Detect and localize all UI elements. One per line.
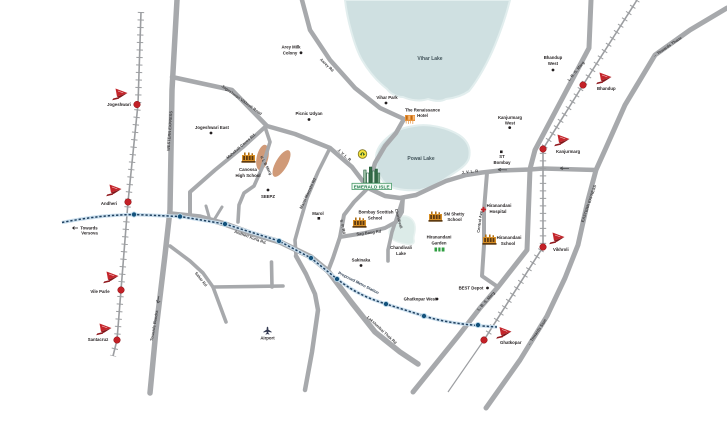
svg-text:Santacruz: Santacruz xyxy=(88,337,109,342)
svg-text:Airport: Airport xyxy=(260,336,275,341)
svg-text:Ghatkopar: Ghatkopar xyxy=(500,340,522,345)
svg-text:Hiranandani: Hiranandani xyxy=(487,203,512,208)
svg-text:Hiranandani: Hiranandani xyxy=(427,235,452,240)
svg-text:EMERALD ISLE: EMERALD ISLE xyxy=(354,185,390,190)
svg-text:Colony: Colony xyxy=(283,51,298,56)
svg-text:Jogeshwari: Jogeshwari xyxy=(107,102,131,107)
svg-text:Kanjurmarg: Kanjurmarg xyxy=(556,149,580,154)
svg-text:The Renaissance: The Renaissance xyxy=(405,107,441,112)
svg-text:School: School xyxy=(447,217,461,222)
svg-text:Vikhroli: Vikhroli xyxy=(553,247,569,252)
svg-text:Canossa: Canossa xyxy=(239,167,258,172)
svg-text:Hiranandani: Hiranandani xyxy=(497,235,522,240)
svg-text:West: West xyxy=(548,61,559,66)
svg-text:Marol: Marol xyxy=(312,211,323,216)
svg-text:Lake: Lake xyxy=(396,251,406,256)
svg-text:ST: ST xyxy=(499,154,505,159)
svg-text:School: School xyxy=(368,216,382,221)
svg-text:Hotel: Hotel xyxy=(417,113,428,118)
svg-text:Kanjurmarg: Kanjurmarg xyxy=(498,115,522,120)
svg-text:Bombay Scottish: Bombay Scottish xyxy=(358,210,393,215)
svg-text:Picnic Udyan: Picnic Udyan xyxy=(296,111,323,116)
svg-text:Arey Milk: Arey Milk xyxy=(281,45,301,50)
svg-text:Versova: Versova xyxy=(81,231,98,236)
svg-text:Vihar Park: Vihar Park xyxy=(376,95,398,100)
svg-text:BEST Depot: BEST Depot xyxy=(459,286,484,291)
svg-text:Chandivali: Chandivali xyxy=(390,245,412,250)
svg-text:Sakinaka: Sakinaka xyxy=(352,258,371,263)
svg-text:High School: High School xyxy=(235,173,260,178)
svg-text:SM Shetty: SM Shetty xyxy=(444,212,465,217)
svg-text:SEEPZ: SEEPZ xyxy=(261,194,275,199)
svg-text:Andheri: Andheri xyxy=(101,201,117,206)
svg-text:Vihar Lake: Vihar Lake xyxy=(417,56,442,62)
svg-text:Hospital: Hospital xyxy=(490,209,507,214)
svg-text:Bhandup: Bhandup xyxy=(597,86,616,91)
svg-text:Powai Lake: Powai Lake xyxy=(407,156,434,162)
svg-text:Ghatkopar West: Ghatkopar West xyxy=(404,297,437,302)
svg-text:School: School xyxy=(501,241,515,246)
svg-text:West: West xyxy=(505,120,516,125)
svg-text:Vile Parle: Vile Parle xyxy=(90,289,110,294)
svg-text:Bombay: Bombay xyxy=(494,160,512,165)
svg-text:Bhandup: Bhandup xyxy=(544,55,563,60)
svg-text:Jogeshwari East: Jogeshwari East xyxy=(195,125,229,130)
svg-text:Towards: Towards xyxy=(80,225,98,230)
svg-text:Garden: Garden xyxy=(431,241,446,246)
